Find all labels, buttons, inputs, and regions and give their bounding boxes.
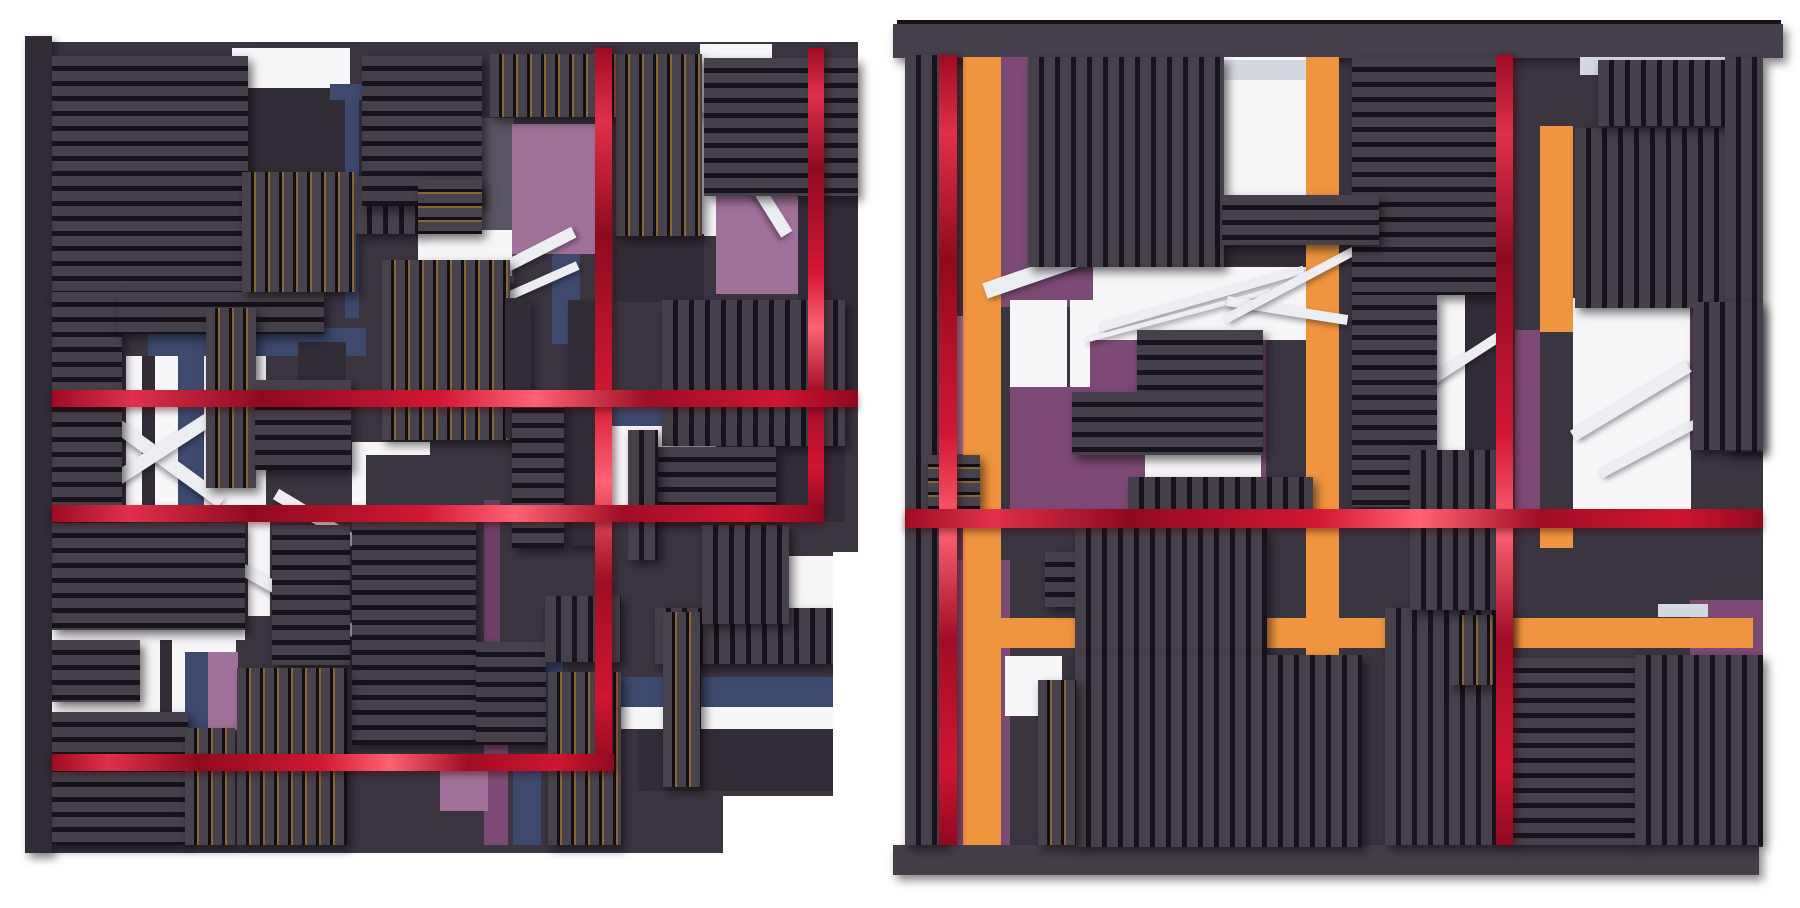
color-patch: [1515, 330, 1540, 512]
red-ribbon-horizontal: [905, 509, 1763, 528]
cornice: [893, 24, 1783, 58]
ribbed-block-vertical: [1575, 128, 1725, 308]
color-patch: [1540, 126, 1573, 332]
ribbed-block-vertical: [1028, 57, 1224, 267]
color-patch: [1145, 455, 1261, 477]
gold-ribbed-block-vertical: [1038, 680, 1076, 845]
gallery-photo: [0, 0, 1800, 908]
color-patch: [1010, 300, 1067, 387]
ribbed-block-vertical: [1598, 60, 1725, 126]
gold-ribbed-block-vertical: [1450, 615, 1493, 685]
ledge: [893, 845, 1759, 875]
red-ribbon-vertical: [939, 55, 957, 845]
ribbed-block-horizontal: [1352, 57, 1500, 295]
color-patch: [963, 57, 1001, 845]
ribbed-block-vertical: [1128, 477, 1313, 512]
ribbed-block-vertical: [1635, 655, 1763, 845]
ribbed-block-vertical: [1693, 302, 1763, 450]
ribbed-block-horizontal: [1137, 330, 1263, 392]
red-ribbon-vertical: [1496, 55, 1513, 845]
ribbed-block-horizontal: [1222, 195, 1379, 245]
ribbed-block-horizontal: [1072, 392, 1263, 455]
color-patch: [1658, 604, 1708, 617]
artwork-right: [0, 0, 1800, 908]
ribbed-block-horizontal: [1510, 658, 1636, 845]
ribbed-block-vertical: [1410, 450, 1496, 610]
color-patch: [1222, 60, 1308, 80]
ribbed-block-vertical: [1075, 655, 1362, 847]
